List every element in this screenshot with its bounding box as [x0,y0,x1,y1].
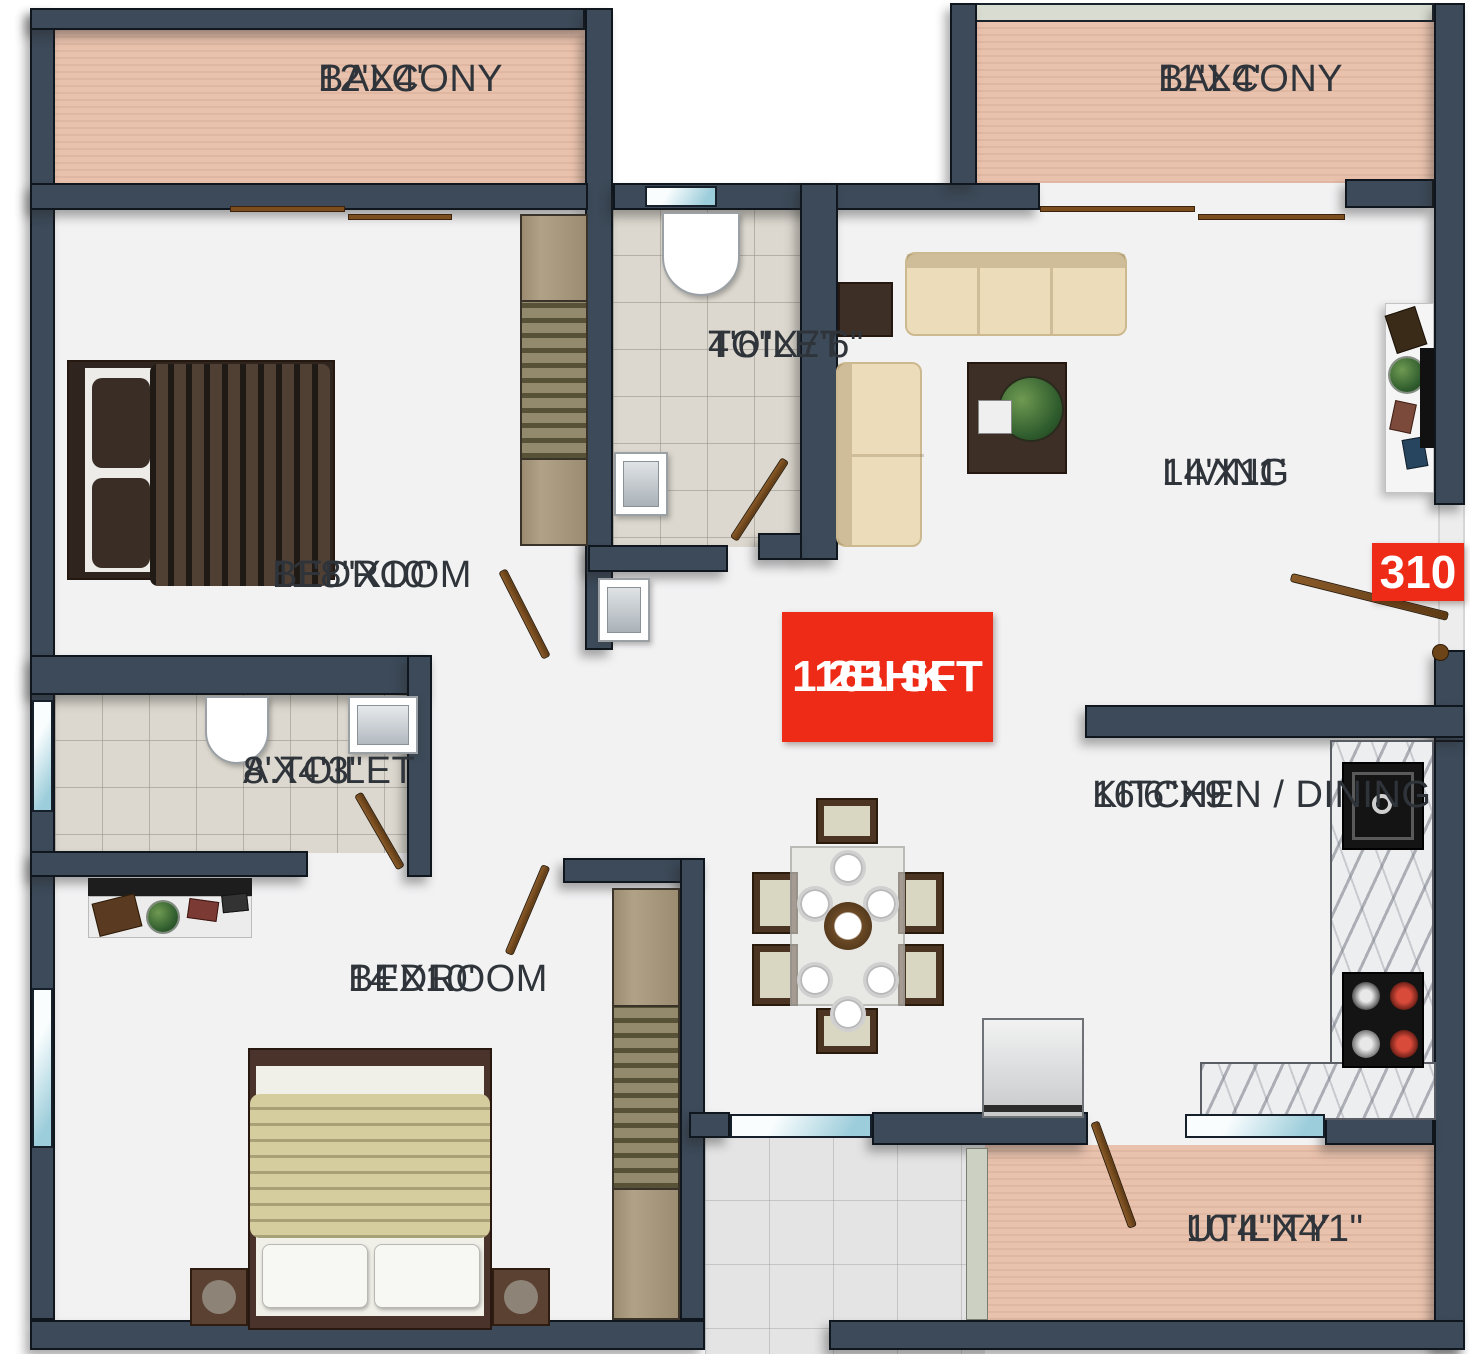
plate-icon [830,996,866,1032]
sofa-long [905,252,1127,336]
sliding-door-balcony-2b [1198,214,1345,220]
plate-icon [863,962,899,998]
room-dims: 12'X4' [318,56,424,102]
room-dims: 14'X11' [1162,450,1287,496]
unit-info-badge: 2BHK 1161 SFT [782,612,993,742]
room-dims: 16'6"X9' [1092,772,1234,818]
tv-console-plant-icon [1390,358,1424,392]
wall-toilet-right [800,183,838,560]
attached-toilet-sink-icon [348,696,418,754]
fridge-icon [982,1018,1084,1118]
stove-icon [1342,972,1424,1068]
wall-foyer-left [680,858,705,1320]
unit-area: 1161 SFT [792,649,983,705]
bed-1-pillow [92,378,150,468]
wall-bottom-right [829,1320,1465,1350]
toilet-sink-icon [614,452,668,516]
nightstand-left [190,1268,248,1326]
toilet-wc-icon [662,212,740,296]
dining-center-bowl [824,902,872,950]
wall-right-lower [1434,740,1465,1350]
window-bedroom-2 [32,988,53,1148]
wall-kitchen-top [1085,705,1465,738]
room-dims: 11'X4' [1158,56,1261,102]
wall-toilet-bottom [588,545,728,572]
kitchen-counter-bottom [1200,1062,1436,1120]
unit-number: 310 [1380,545,1457,599]
console-book [187,898,219,922]
window-attached-toilet [32,700,53,812]
tv-icon [1420,348,1434,448]
bed-1-pillow-2 [92,478,150,568]
bedroom-2-tv-icon [88,878,252,896]
room-dims: 14'X10' [348,956,476,1002]
wall-attached-toilet-top [30,655,432,695]
wardrobe-1-hangers [522,300,586,460]
room-dims: 11'8"X10' [272,552,433,598]
wall-right-upper [1434,3,1465,505]
bed-2-pillow-2 [374,1244,480,1308]
outside-gap-top [613,0,950,183]
sliding-door-balcony-2 [1040,206,1195,212]
balcony-2-railing [950,3,1434,22]
sliding-door-balcony-1b [348,214,452,220]
window-toilet [645,186,717,207]
unit-number-badge: 310 [1372,543,1464,601]
room-dims: 10'4"X4'1" [1186,1206,1364,1252]
sliding-door-balcony-1 [230,206,345,212]
outside-right-edge [1465,0,1470,1354]
dining-chair-top [816,798,878,844]
nightstand-right [492,1268,550,1326]
wall-living-top-right [1345,179,1434,208]
plate-icon [830,850,866,886]
wall-balcony-2-left [950,3,977,185]
wall-toilet-right-foot [758,533,802,560]
window-foyer [730,1114,872,1138]
corridor-basin-icon [598,578,650,642]
wall-attached-toilet-bottom [30,851,308,877]
bed-2-blanket [250,1094,490,1238]
coffee-table-tray [978,400,1012,434]
floor-plan: BALCONY 12'X4' BALCONY 11'X4' TOILET 4'6… [0,0,1470,1354]
wall-foyer-band-left [689,1112,730,1138]
sofa-short [836,362,922,547]
wall-living-top-left [810,183,1040,210]
wall-balcony-1-top [30,8,585,30]
bed-2-pillow [262,1244,368,1308]
wardrobe-2-hangers [614,1005,678,1190]
window-utility [1185,1114,1325,1138]
balcony-1-floor [52,26,585,185]
door-main-entrance-knob [1432,644,1449,661]
utility-partition [966,1148,988,1320]
console-book-2 [221,893,249,914]
room-dims: 4'6"X7'6" [708,322,864,368]
plate-icon [797,962,833,998]
room-dims: 8'X4'3" [243,748,363,794]
console-plant-icon [148,902,178,932]
